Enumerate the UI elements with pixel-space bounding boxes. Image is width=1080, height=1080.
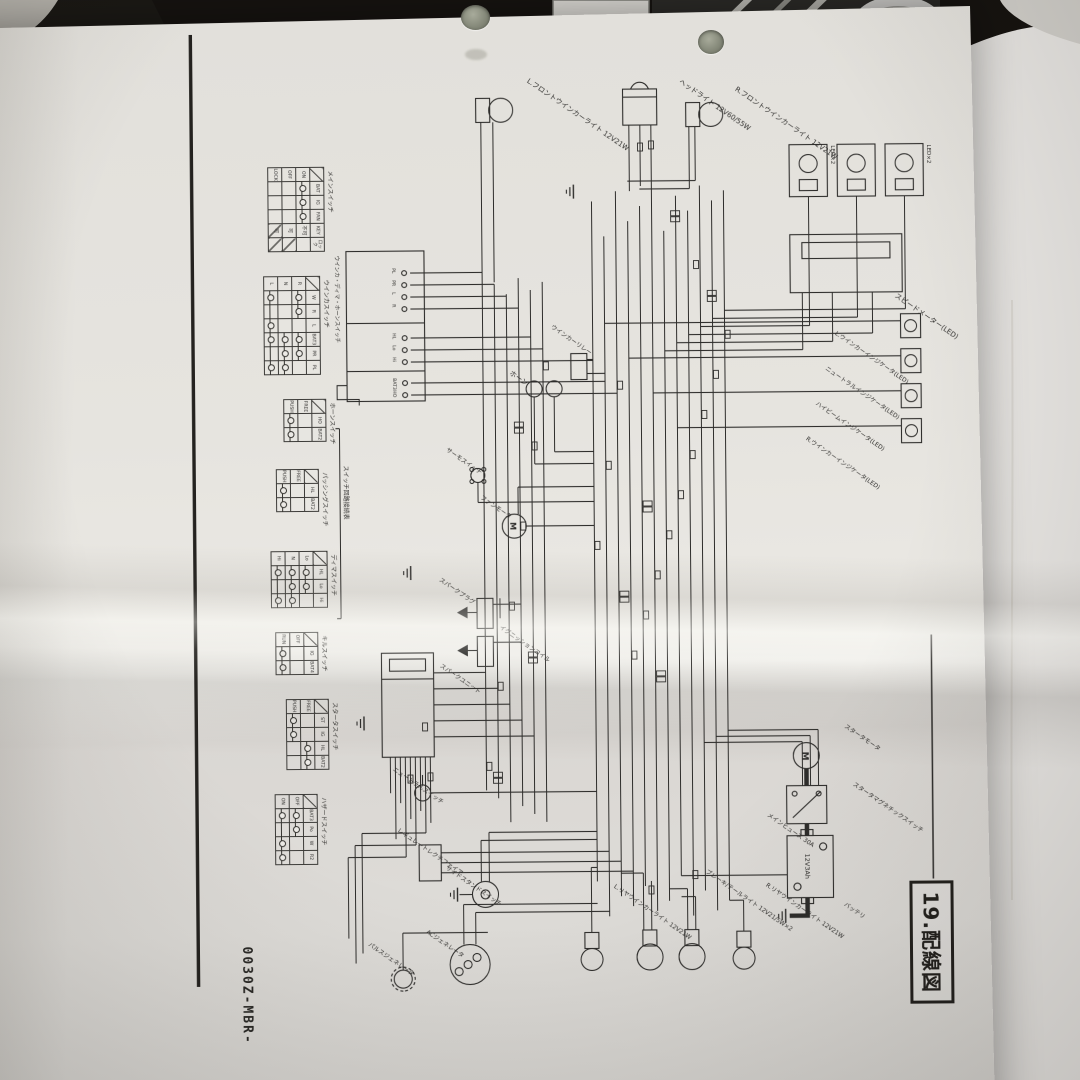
switch-grid-cell: [278, 291, 292, 305]
label-front-winker-l: L.フロントウインカーライト 12V21W: [525, 77, 630, 153]
switch-grid: HLBAT2FREEPUSH: [276, 468, 319, 511]
switch-grid-cell: [287, 755, 301, 769]
switch-grid-cell: [264, 291, 278, 305]
page-stack-streak-2: [1011, 300, 1012, 900]
switch-grid-cell: [296, 195, 310, 209]
chapter-tab-label: 19.配線図: [919, 891, 944, 993]
switch-grid-cell: OFF: [290, 632, 304, 646]
switch-grid-cell: [306, 276, 320, 290]
switch-grid-cell: [285, 579, 299, 593]
switch-grid-cell: [296, 237, 310, 251]
switch-table-label: ハザードスイッチ: [320, 797, 330, 864]
switch-grid-cell: [285, 565, 299, 579]
switch-grid-cell: [301, 727, 315, 741]
switch-grid-cell: PUSH: [286, 699, 300, 713]
switch-grid-cell: [300, 713, 314, 727]
switch-grid-cell: [268, 182, 282, 196]
switch-grid-cell: HL: [304, 483, 318, 497]
label-magnetic-switch: スタータマグネチックスイッチ: [851, 780, 925, 834]
switch-grid-cell: IG: [304, 646, 318, 660]
brake-tail-lamps: [637, 929, 705, 970]
switch-grid-cell: [289, 822, 303, 836]
label-fan-motor-m: M: [508, 522, 517, 530]
switch-grid-cell: [282, 210, 296, 224]
pin-label: PL: [390, 268, 396, 274]
switch-grid-cell: [276, 850, 290, 864]
switch-grid-cell: N: [278, 277, 292, 291]
switch-table-6: キルスイッチIGBAT4OFFRUN: [275, 631, 329, 674]
label-spark-unit: スパークユニット: [438, 663, 482, 696]
switch-grid-cell: BAT3: [303, 808, 317, 822]
switch-grid-cell: [303, 794, 317, 808]
switch-grid-cell: ON: [296, 167, 310, 181]
switch-grid-cell: [276, 660, 290, 674]
switch-grid-cell: PR: [306, 346, 320, 360]
switch-grid-cell: [299, 593, 313, 607]
switch-grid-cell: [312, 399, 326, 413]
switch-grid: STIGHLBAT2FREEPUSH: [286, 698, 330, 769]
switch-grid-cell: [296, 209, 310, 223]
switch-grid-cell: [299, 579, 313, 593]
switch-grid-cell: [304, 469, 318, 483]
winker-relay: [571, 354, 587, 380]
pin-label: HL: [391, 333, 397, 340]
switch-grid-cell: PL: [306, 360, 320, 374]
switch-grid-cell: HL: [315, 741, 329, 755]
switch-grid-cell: PUSH: [284, 400, 298, 414]
switch-grid-cell: OFF: [289, 794, 303, 808]
switch-table-5: ディマスイッチHLLoHiLoNHi: [271, 550, 339, 608]
switch-grid-cell: [301, 741, 315, 755]
label-section-bracket: スイッチ回路接続表: [342, 466, 350, 520]
ignition-coils: [458, 598, 494, 666]
switch-grid-cell: [268, 196, 282, 210]
label-headlight: ヘッドライト 12V60/55W: [677, 78, 752, 133]
switch-table-label: ホーンスイッチ: [328, 403, 337, 445]
pin-label: PR: [390, 280, 396, 287]
switch-grid-cell: Lo: [313, 579, 327, 593]
magnetic-switch: [787, 785, 827, 823]
switch-grid-cell: [292, 318, 306, 332]
switch-grid-cell: [289, 836, 303, 850]
switch-grid-cell: IG: [310, 195, 324, 209]
switch-grid-cell: [275, 822, 289, 836]
switch-table-8: ハザードスイッチBAT3PoWR2OFFON: [275, 793, 330, 864]
switch-grid-cell: [287, 741, 301, 755]
switch-grid-cell: [290, 850, 304, 864]
switch-grid-cell: [290, 483, 304, 497]
label-starter-motor: スタータモータ: [843, 722, 882, 752]
switch-grid-cell: [264, 361, 278, 375]
label-led-x2-b: LED×2: [829, 145, 835, 164]
switch-continuity-tables: メインスイッチBATIGFANKEYロックON不可OFF可LOCK可ウインカスイ…: [262, 167, 341, 865]
label-pulse-generator: パルスジェネレータ: [367, 940, 416, 977]
switch-grid: HLLoHiLoNHi: [271, 550, 328, 607]
switch-grid-cell: ST: [314, 713, 328, 727]
switch-grid-cell: [277, 497, 291, 511]
switch-table-label: メインスイッチ: [326, 171, 336, 252]
switch-grid-cell: [292, 304, 306, 318]
switch-grid-cell: [275, 836, 289, 850]
switch-grid-cell: [298, 427, 312, 441]
switch-grid-cell: [278, 319, 292, 333]
switch-grid-cell: [278, 305, 292, 319]
switch-table-3: ホーンスイッチHOBAT2FREEPUSH: [283, 399, 337, 445]
label-winker-relay: ウインカーリレー: [549, 323, 593, 357]
switch-grid-cell: R2: [304, 850, 318, 864]
switch-grid: BATIGFANKEYロックON不可OFF可LOCK可: [267, 167, 325, 252]
label-thermo-switch: サーモスイッチ: [445, 447, 484, 477]
switch-grid-cell: HO: [312, 413, 326, 427]
component-labels: R.フロントウインカーライト 12V21W ヘッドライト 12V60/55W L…: [331, 73, 966, 978]
switch-grid-cell: [275, 808, 289, 822]
switch-grid-cell: FREE: [300, 699, 314, 713]
switch-table-label: スタータスイッチ: [331, 702, 341, 769]
switch-grid-cell: [310, 167, 324, 181]
rear-winker-right-lamp: [733, 931, 755, 969]
switch-table-label: キルスイッチ: [320, 635, 329, 674]
switch-grid-cell: [292, 332, 306, 346]
wiring-diagram-rotated: 19.配線図 0030Z-MBR- メインスイッチBATIGFANKEYロックO…: [185, 28, 948, 1010]
switch-grid-cell: [268, 238, 282, 252]
switch-grid-cell: L: [264, 277, 278, 291]
switch-grid-cell: [276, 646, 290, 660]
switch-grid-cell: BAT: [310, 181, 324, 195]
switch-table-7: スタータスイッチSTIGHLBAT2FREEPUSH: [286, 698, 341, 769]
pin-label: HO: [391, 390, 397, 398]
doc-number: 0030Z-MBR-: [239, 946, 255, 1044]
switch-grid: BAT3PoWR2OFFON: [275, 793, 319, 864]
switch-table-2: ウインカスイッチWRLBAT3PRPLRNL: [263, 276, 332, 376]
switch-grid-cell: FREE: [290, 469, 304, 483]
switch-grid-cell: [301, 755, 315, 769]
switch-grid: IGBAT4OFFRUN: [275, 631, 318, 674]
switch-grid-cell: [287, 727, 301, 741]
label-led-x2-a: LED×2: [925, 144, 931, 163]
switch-grid-cell: R: [292, 276, 306, 290]
switch-grid-cell: HL: [313, 565, 327, 579]
chapter-tab: 19.配線図: [909, 880, 954, 1004]
label-ignition-coil: イグニッションコイル: [498, 623, 552, 664]
switch-table-label: パッシングスイッチ: [321, 472, 330, 526]
switch-grid-cell: [291, 497, 305, 511]
label-starter-motor-m: M: [799, 752, 809, 761]
binder-hole: [461, 5, 490, 30]
switch-grid-cell: [289, 808, 303, 822]
switch-grid-cell: N: [285, 551, 299, 565]
label-rear-winker-l: L.リヤウインカーライト 12V21W: [612, 882, 693, 941]
label-battery: バッテリ: [842, 901, 866, 920]
switch-housing: [336, 251, 425, 406]
housing-pin-labels: PLPRLRHLLoHiBAT3HO: [390, 268, 397, 398]
switch-grid-cell: BAT2: [305, 497, 319, 511]
switch-grid-cell: [264, 319, 278, 333]
pin-label: Hi: [391, 357, 397, 362]
switch-grid-cell: [284, 414, 298, 428]
switch-grid-cell: Hi: [271, 551, 285, 565]
switch-grid-cell: [282, 182, 296, 196]
label-battery-spec: 12V3Ah: [803, 854, 811, 879]
switch-grid-cell: L: [306, 318, 320, 332]
switch-grid-cell: [278, 347, 292, 361]
photo-of-manual-page: 19.配線図 0030Z-MBR- メインスイッチBATIGFANKEYロックO…: [0, 0, 1080, 1080]
switch-grid-cell: [264, 347, 278, 361]
switch-grid-cell: OFF: [282, 168, 296, 182]
switch-grid-cell: Hi: [313, 593, 327, 607]
switch-grid-cell: BAT4: [304, 660, 318, 674]
switch-grid-cell: [292, 346, 306, 360]
switch-grid-cell: [296, 181, 310, 195]
switch-grid-cell: W: [303, 836, 317, 850]
switch-table-label: ディマスイッチ: [330, 554, 339, 607]
switch-grid-cell: ON: [275, 794, 289, 808]
switch-grid-cell: [290, 646, 304, 660]
switch-grid-cell: BAT2: [312, 427, 326, 441]
pin-label: L: [390, 292, 396, 295]
switch-grid-cell: IG: [315, 727, 329, 741]
switch-grid-cell: BAT3: [306, 332, 320, 346]
switch-grid-cell: [278, 333, 292, 347]
front-winker-left-lamp: [476, 98, 513, 122]
switch-grid-cell: [284, 428, 298, 442]
wire-harness: [342, 119, 911, 971]
switch-grid-cell: RUN: [276, 632, 290, 646]
switch-grid-cell: FAN: [310, 209, 324, 223]
switch-grid-cell: [304, 632, 318, 646]
switch-grid-cell: [278, 361, 292, 375]
switch-grid-cell: BAT2: [315, 755, 329, 769]
switch-table-4: パッシングスイッチHLBAT2FREEPUSH: [276, 468, 331, 526]
switch-grid-cell: [292, 290, 306, 304]
binder-hole-indent: [465, 49, 487, 60]
switch-grid-cell: R: [306, 304, 320, 318]
switch-grid-cell: [299, 565, 313, 579]
switch-grid-cell: [271, 579, 285, 593]
label-spark-plug: スパークプラグ: [438, 576, 477, 606]
switch-grid-cell: W: [306, 290, 320, 304]
switch-grid-cell: [271, 565, 285, 579]
switch-grid-cell: ロック: [310, 237, 324, 251]
pin-label: BAT3: [391, 378, 397, 390]
switch-grid-cell: Po: [303, 822, 317, 836]
switch-grid-cell: KEY: [310, 223, 324, 237]
pin-label: Lo: [391, 345, 397, 351]
switch-grid-cell: Lo: [299, 551, 313, 565]
switch-grid-cell: 不可: [296, 223, 310, 237]
switch-grid-cell: [313, 551, 327, 565]
spark-unit: [381, 653, 434, 757]
switch-grid-cell: FREE: [298, 399, 312, 413]
switch-grid-cell: [314, 699, 328, 713]
binder-hole: [698, 30, 724, 54]
switch-grid-cell: [286, 713, 300, 727]
switch-grid-cell: [282, 196, 296, 210]
switch-grid-cell: [285, 593, 299, 607]
switch-grid-cell: [282, 238, 296, 252]
switch-grid-cell: [298, 413, 312, 427]
switch-grid-cell: [290, 660, 304, 674]
switch-table-label: ウインカスイッチ: [322, 280, 332, 375]
headlight-lamp: [622, 82, 656, 125]
switch-grid-cell: [292, 360, 306, 374]
switch-grid-cell: 可: [282, 224, 296, 238]
switch-grid-cell: [268, 210, 282, 224]
rear-winker-left-lamp: [581, 932, 603, 970]
pin-label: R: [390, 304, 396, 308]
switch-grid-cell: 可: [268, 224, 282, 238]
switch-grid-cell: [276, 483, 290, 497]
switch-grid-cell: [271, 593, 285, 607]
switch-table-1: メインスイッチBATIGFANKEYロックON不可OFF可LOCK可: [267, 167, 336, 253]
switch-grid: WRLBAT3PRPLRNL: [263, 276, 321, 375]
switch-grid: HOBAT2FREEPUSH: [283, 399, 326, 442]
switch-grid-cell: [264, 305, 278, 319]
switch-grid-cell: LOCK: [268, 168, 282, 182]
switch-grid-cell: PUSH: [276, 469, 290, 483]
switch-grid-cell: [264, 333, 278, 347]
